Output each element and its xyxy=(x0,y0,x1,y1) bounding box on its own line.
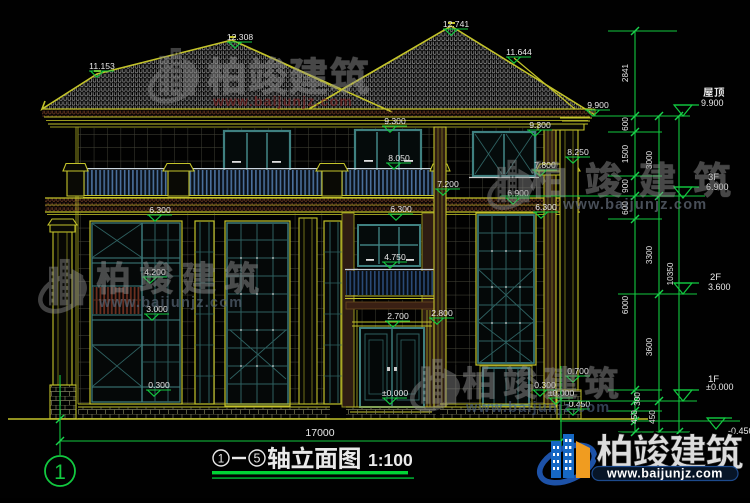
svg-text:7.200: 7.200 xyxy=(437,179,459,189)
svg-text:17000: 17000 xyxy=(305,427,334,439)
svg-text:3600: 3600 xyxy=(645,337,654,356)
svg-text:9.900: 9.900 xyxy=(701,98,724,108)
svg-text:www.baijunjz.com: www.baijunjz.com xyxy=(562,197,707,213)
svg-text:www.baijunjz.com: www.baijunjz.com xyxy=(212,93,353,109)
svg-text:11.644: 11.644 xyxy=(506,47,532,57)
svg-text:6.300: 6.300 xyxy=(149,205,171,215)
svg-text:6000: 6000 xyxy=(621,295,630,314)
svg-text:www.baijunjz.com: www.baijunjz.com xyxy=(98,295,243,311)
svg-text:6.300: 6.300 xyxy=(390,204,412,214)
svg-text:±0.000: ±0.000 xyxy=(382,388,408,398)
svg-text:2.800: 2.800 xyxy=(431,308,453,318)
svg-text:300: 300 xyxy=(633,392,642,406)
svg-text:600: 600 xyxy=(621,117,630,131)
svg-text:8.050: 8.050 xyxy=(388,153,410,163)
svg-text:3.600: 3.600 xyxy=(708,282,731,292)
svg-text:12.308: 12.308 xyxy=(227,32,254,42)
svg-text:3300: 3300 xyxy=(645,245,654,264)
svg-text:9.300: 9.300 xyxy=(384,116,406,126)
svg-text:1: 1 xyxy=(54,461,66,484)
svg-text:www.baijunjz.com: www.baijunjz.com xyxy=(465,400,610,416)
svg-text:12.741: 12.741 xyxy=(443,19,470,29)
svg-text:6.300: 6.300 xyxy=(535,202,557,212)
svg-text:2841: 2841 xyxy=(621,63,630,82)
svg-text:±0.000: ±0.000 xyxy=(706,382,733,392)
svg-text:1:100: 1:100 xyxy=(368,450,413,470)
svg-text:0.300: 0.300 xyxy=(148,380,170,390)
svg-text:9.300: 9.300 xyxy=(529,120,551,130)
svg-text:1500: 1500 xyxy=(621,144,630,163)
svg-text:9.900: 9.900 xyxy=(587,100,609,110)
svg-text:1: 1 xyxy=(218,454,224,466)
svg-text:450: 450 xyxy=(648,410,657,424)
svg-text:4.750: 4.750 xyxy=(384,252,406,262)
svg-text:2.700: 2.700 xyxy=(387,311,409,321)
svg-text:450: 450 xyxy=(630,410,639,424)
svg-text:10350: 10350 xyxy=(666,262,675,285)
svg-text:www.baijunjz.com: www.baijunjz.com xyxy=(606,467,723,481)
svg-text:8.250: 8.250 xyxy=(567,147,589,157)
svg-text:11.153: 11.153 xyxy=(89,61,115,71)
svg-text:5: 5 xyxy=(254,452,261,466)
svg-text:900: 900 xyxy=(621,179,630,193)
